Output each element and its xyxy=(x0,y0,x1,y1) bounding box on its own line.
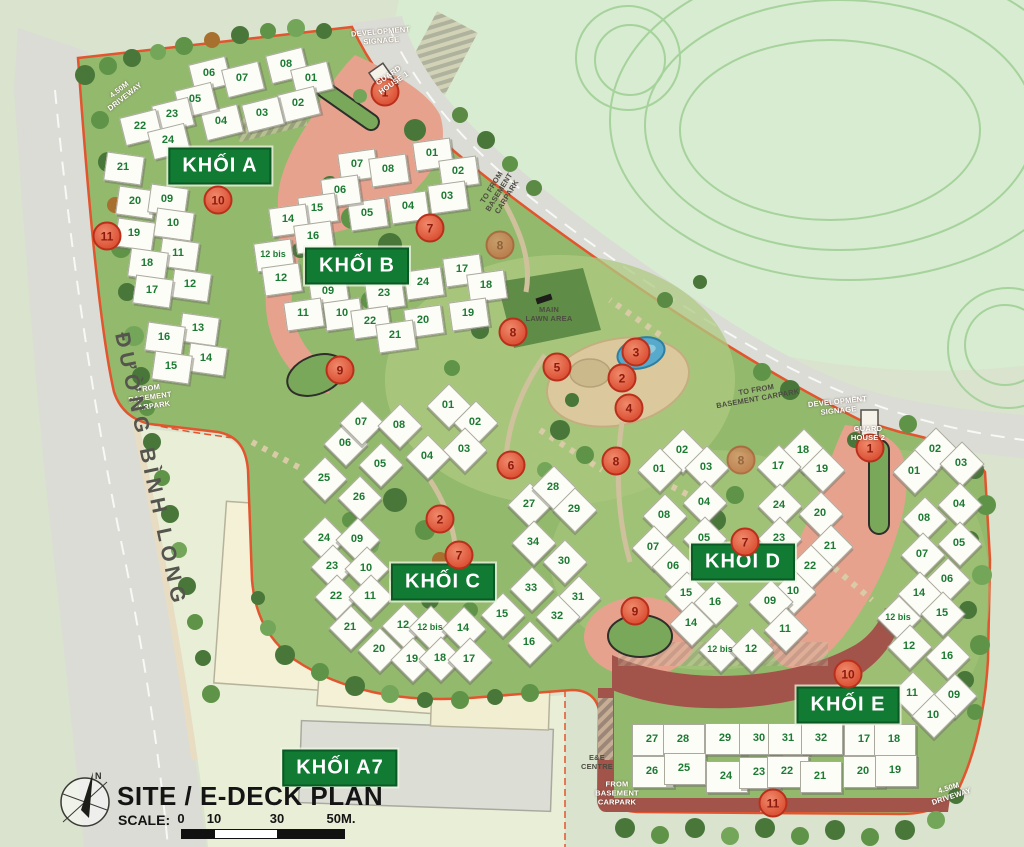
unit-number: 17 xyxy=(772,460,784,472)
unit-number: 14 xyxy=(282,213,294,225)
unit-number: 31 xyxy=(782,732,794,744)
site-marker-9: 9 xyxy=(621,597,650,626)
unit-number: 04 xyxy=(698,496,710,508)
map-annotation: MAIN LAWN AREA xyxy=(526,305,573,323)
unit-number: 15 xyxy=(496,608,508,620)
unit-number: 05 xyxy=(361,207,373,219)
unit-number: 21 xyxy=(389,329,401,341)
unit-number: 05 xyxy=(189,93,201,105)
unit-number: 18 xyxy=(480,279,492,291)
unit-number: 20 xyxy=(373,643,385,655)
unit-number: 21 xyxy=(344,621,356,633)
unit-number: 04 xyxy=(421,450,433,462)
unit-number: 06 xyxy=(667,560,679,572)
site-marker-7: 7 xyxy=(416,214,445,243)
unit-number: 11 xyxy=(779,623,791,635)
unit-number: 12 bis xyxy=(260,249,286,259)
unit-number: 09 xyxy=(322,285,334,297)
unit-number: 11 xyxy=(364,590,376,602)
unit-number: 08 xyxy=(918,512,930,524)
unit-number: 06 xyxy=(339,437,351,449)
unit-number: 01 xyxy=(426,147,438,159)
unit-number: 21 xyxy=(814,770,826,782)
unit-number: 23 xyxy=(773,532,785,544)
scale-bar xyxy=(181,829,345,839)
unit-number: 17 xyxy=(463,653,475,665)
unit-number: 07 xyxy=(647,541,659,553)
unit-number: 15 xyxy=(311,202,323,214)
unit-number: 21 xyxy=(117,161,129,173)
unit-number: 12 xyxy=(397,619,409,631)
map-annotation: GUARD HOUSE 2 xyxy=(851,424,885,442)
plan-title: SITE / E-DECK PLAN xyxy=(117,781,383,812)
map-annotation: E&E CENTRE xyxy=(581,753,613,771)
unit-number: 28 xyxy=(547,481,559,493)
unit-number: 04 xyxy=(402,200,414,212)
unit-number: 17 xyxy=(146,284,158,296)
unit-number: 02 xyxy=(469,416,481,428)
site-marker-3: 3 xyxy=(622,338,651,367)
unit-number: 06 xyxy=(941,573,953,585)
site-marker-9: 9 xyxy=(326,356,355,385)
unit-number: 08 xyxy=(658,509,670,521)
scale-tick: 0 xyxy=(177,811,184,826)
site-marker-2: 2 xyxy=(608,364,637,393)
scale-bar-segment xyxy=(215,830,277,838)
site-marker-10: 10 xyxy=(204,186,233,215)
unit-number: 15 xyxy=(165,360,177,372)
unit-number: 02 xyxy=(452,165,464,177)
unit-number: 18 xyxy=(434,652,446,664)
unit-number: 13 xyxy=(192,322,204,334)
site-marker-11: 11 xyxy=(93,222,122,251)
unit-number: 26 xyxy=(353,491,365,503)
unit-number: 18 xyxy=(888,733,900,745)
unit-number: 03 xyxy=(256,107,268,119)
unit-number: 07 xyxy=(236,72,248,84)
site-marker-7: 7 xyxy=(731,528,760,557)
unit-number: 12 bis xyxy=(707,644,733,654)
unit-number: 22 xyxy=(134,120,146,132)
unit-number: 16 xyxy=(941,650,953,662)
unit-number: 18 xyxy=(141,257,153,269)
scale-label: SCALE: xyxy=(118,812,170,828)
unit-number: 03 xyxy=(955,457,967,469)
unit-number: 10 xyxy=(360,562,372,574)
unit-number: 32 xyxy=(815,732,827,744)
unit-number: 34 xyxy=(527,536,539,548)
unit-number: 09 xyxy=(161,193,173,205)
site-marker-8: 8 xyxy=(486,231,515,260)
unit-number: 19 xyxy=(406,653,418,665)
site-marker-2: 2 xyxy=(426,505,455,534)
unit-number: 30 xyxy=(558,555,570,567)
unit-number: 14 xyxy=(685,617,697,629)
unit-number: 25 xyxy=(678,762,690,774)
block-label: KHỐI A xyxy=(168,148,271,185)
block-label: KHỐI B xyxy=(305,248,409,285)
scale-tick: 50M. xyxy=(327,811,356,826)
site-plan: ĐƯỜNG BÌNH LONG SITE / E-DECK PLAN SCALE… xyxy=(0,0,1024,847)
unit-number: 28 xyxy=(677,733,689,745)
site-marker-7: 7 xyxy=(445,541,474,570)
unit-number: 22 xyxy=(364,315,376,327)
compass-north-label: N xyxy=(95,771,102,781)
unit-number: 24 xyxy=(162,134,174,146)
unit-number: 12 xyxy=(275,272,287,284)
unit-number: 02 xyxy=(929,443,941,455)
unit-number: 08 xyxy=(393,419,405,431)
unit-number: 20 xyxy=(417,314,429,326)
unit-number: 06 xyxy=(334,184,346,196)
unit-number: 01 xyxy=(653,463,665,475)
unit-number: 16 xyxy=(709,596,721,608)
unit-number: 09 xyxy=(764,595,776,607)
unit-number: 31 xyxy=(572,591,584,603)
map-annotation: FROM BASEMENT CARPARK xyxy=(595,780,639,807)
unit-number: 07 xyxy=(355,416,367,428)
unit-number: 04 xyxy=(215,115,227,127)
unit-number: 08 xyxy=(280,58,292,70)
site-marker-5: 5 xyxy=(543,353,572,382)
site-marker-4: 4 xyxy=(615,394,644,423)
unit-number: 02 xyxy=(292,97,304,109)
unit-number: 05 xyxy=(698,532,710,544)
unit-number: 19 xyxy=(462,307,474,319)
unit-number: 30 xyxy=(753,732,765,744)
unit-number: 05 xyxy=(374,458,386,470)
unit-number: 02 xyxy=(676,444,688,456)
unit-number: 24 xyxy=(417,276,429,288)
unit-number: 20 xyxy=(129,195,141,207)
unit-number: 06 xyxy=(203,67,215,79)
site-marker-8: 8 xyxy=(727,446,756,475)
unit-number: 16 xyxy=(523,636,535,648)
unit-number: 08 xyxy=(382,163,394,175)
unit-number: 20 xyxy=(814,507,826,519)
site-marker-8: 8 xyxy=(602,447,631,476)
unit-number: 22 xyxy=(804,560,816,572)
unit-number: 23 xyxy=(326,560,338,572)
unit-number: 10 xyxy=(927,709,939,721)
site-marker-8: 8 xyxy=(499,318,528,347)
unit-number: 19 xyxy=(889,764,901,776)
unit-number: 26 xyxy=(646,765,658,777)
unit-number: 23 xyxy=(753,766,765,778)
unit-number: 15 xyxy=(936,607,948,619)
unit-number: 07 xyxy=(916,548,928,560)
unit-number: 27 xyxy=(646,733,658,745)
unit-number: 20 xyxy=(857,765,869,777)
scale-bar-segment xyxy=(182,830,215,838)
unit-number: 18 xyxy=(797,444,809,456)
unit-number: 04 xyxy=(953,498,965,510)
scale-tick: 10 xyxy=(207,811,221,826)
unit-number: 10 xyxy=(787,585,799,597)
unit-number: 10 xyxy=(336,307,348,319)
site-marker-10: 10 xyxy=(834,660,863,689)
unit-number: 22 xyxy=(781,765,793,777)
unit-number: 14 xyxy=(913,587,925,599)
unit-number: 12 xyxy=(745,643,757,655)
scale-tick: 30 xyxy=(270,811,284,826)
unit-number: 07 xyxy=(351,158,363,170)
unit-number: 09 xyxy=(351,533,363,545)
unit-number: 09 xyxy=(948,689,960,701)
unit-number: 01 xyxy=(442,399,454,411)
unit-number: 01 xyxy=(908,465,920,477)
unit-number: 19 xyxy=(816,463,828,475)
unit-number: 19 xyxy=(128,227,140,239)
unit-number: 24 xyxy=(773,499,785,511)
block-label: KHỐI C xyxy=(391,564,495,601)
unit-number: 16 xyxy=(158,331,170,343)
unit-number: 11 xyxy=(906,687,918,699)
unit-number: 03 xyxy=(700,461,712,473)
site-marker-6: 6 xyxy=(497,451,526,480)
unit-number: 25 xyxy=(318,472,330,484)
unit-number: 17 xyxy=(456,263,468,275)
unit-number: 12 bis xyxy=(885,612,911,622)
unit-number: 24 xyxy=(720,770,732,782)
unit-number: 27 xyxy=(523,498,535,510)
site-marker-11: 11 xyxy=(759,789,788,818)
unit-number: 03 xyxy=(441,190,453,202)
unit-number: 16 xyxy=(307,230,319,242)
unit-number: 24 xyxy=(318,532,330,544)
unit-number: 23 xyxy=(166,108,178,120)
scale-bar-segment xyxy=(277,830,344,838)
unit-number: 11 xyxy=(172,247,184,259)
unit-number: 33 xyxy=(525,582,537,594)
unit-number: 10 xyxy=(167,217,179,229)
unit-number: 12 xyxy=(903,640,915,652)
unit-number: 11 xyxy=(297,307,309,319)
unit-number: 03 xyxy=(458,443,470,455)
unit-number: 23 xyxy=(378,287,390,299)
unit-number: 22 xyxy=(330,590,342,602)
unit-number: 32 xyxy=(551,610,563,622)
unit-number: 14 xyxy=(200,352,212,364)
unit-number: 12 bis xyxy=(417,622,443,632)
unit-number: 15 xyxy=(680,587,692,599)
unit-number: 12 xyxy=(184,278,196,290)
unit-number: 29 xyxy=(568,503,580,515)
unit-number: 01 xyxy=(305,72,317,84)
unit-number: 29 xyxy=(719,732,731,744)
unit-number: 05 xyxy=(953,537,965,549)
block-label: KHỐI E xyxy=(797,687,900,724)
unit-number: 14 xyxy=(457,622,469,634)
unit-number: 21 xyxy=(824,540,836,552)
unit-number: 17 xyxy=(858,733,870,745)
